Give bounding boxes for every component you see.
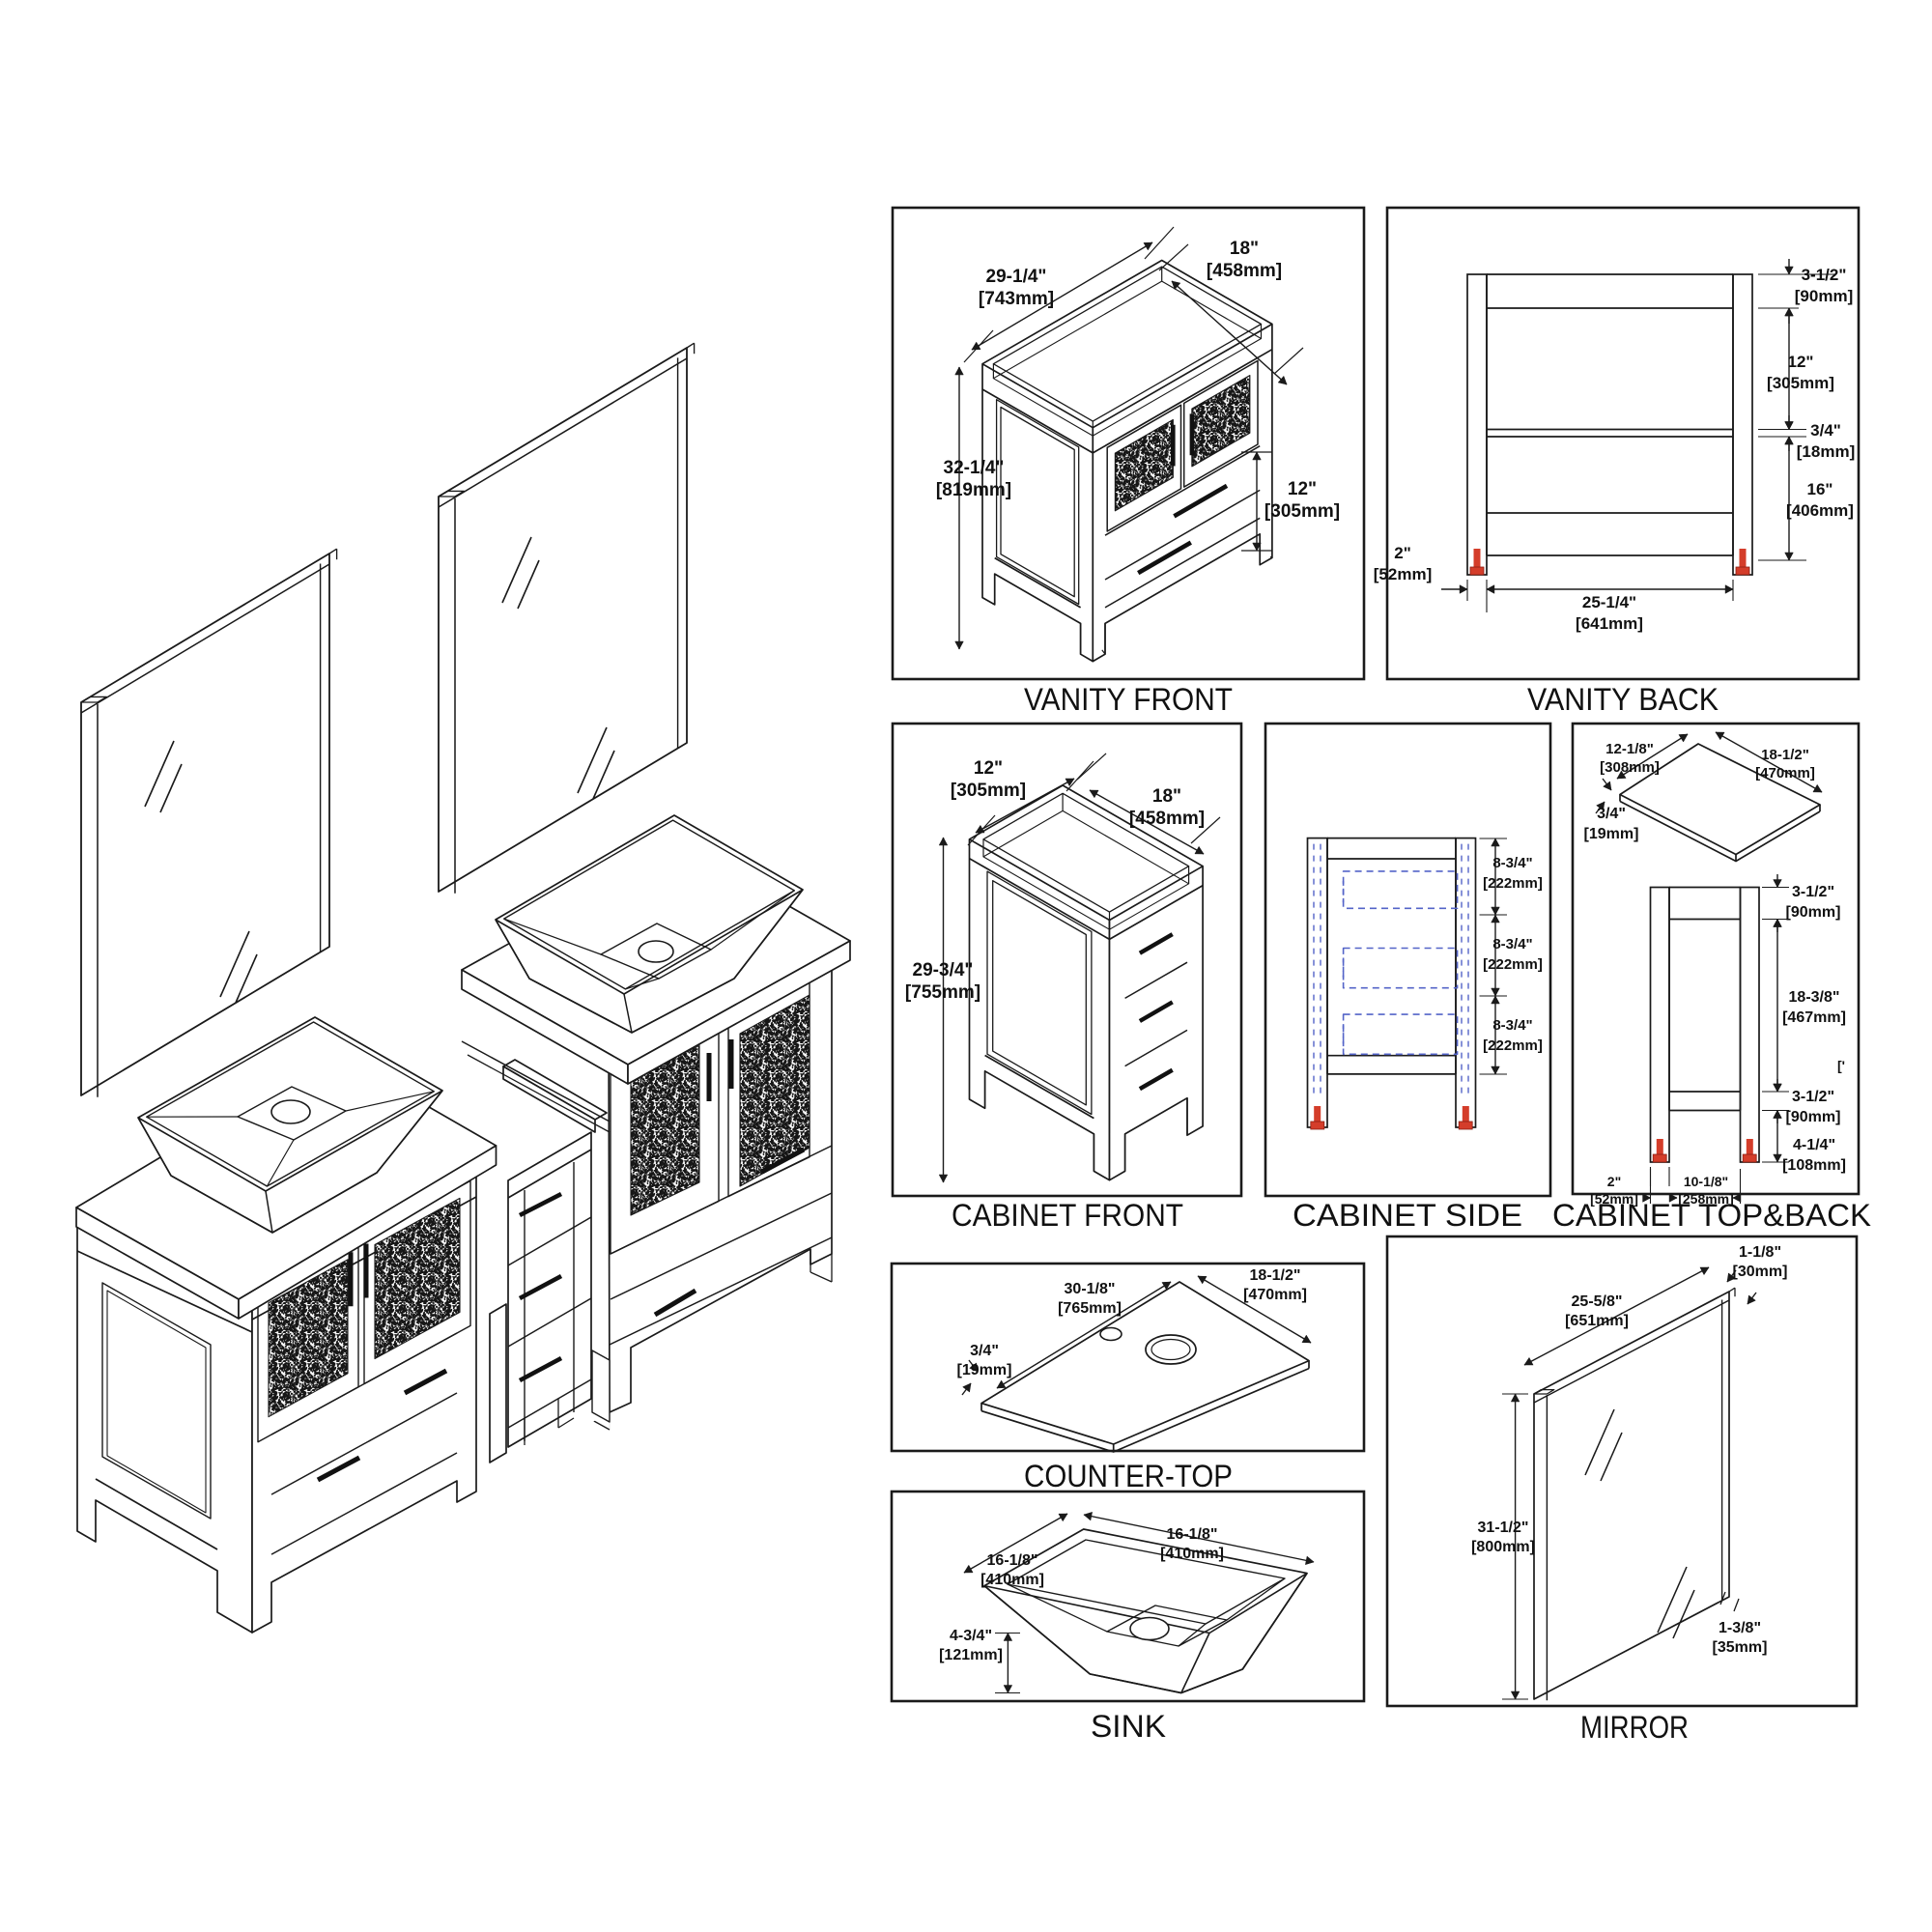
svg-text:8-3/4": 8-3/4"	[1492, 1017, 1532, 1034]
svg-text:[410mm]: [410mm]	[1160, 1546, 1224, 1562]
svg-text:[18mm]: [18mm]	[1797, 442, 1855, 461]
svg-text:[308mm]: [308mm]	[1600, 759, 1660, 776]
svg-text:[19mm]: [19mm]	[957, 1362, 1012, 1378]
svg-text:[90mm]: [90mm]	[1786, 904, 1841, 921]
svg-text:[458mm]: [458mm]	[1129, 809, 1205, 829]
svg-text:VANITY FRONT: VANITY FRONT	[1024, 682, 1233, 717]
svg-text:MIRROR: MIRROR	[1580, 1710, 1689, 1745]
svg-text:[52mm]: [52mm]	[1374, 565, 1432, 583]
svg-text:[121mm]: [121mm]	[939, 1647, 1003, 1663]
svg-text:25-5/8": 25-5/8"	[1572, 1293, 1623, 1310]
svg-text:[': ['	[1837, 1058, 1845, 1073]
svg-text:12": 12"	[974, 758, 1003, 779]
svg-text:10-1/8": 10-1/8"	[1684, 1174, 1728, 1189]
svg-text:18": 18"	[1152, 786, 1181, 807]
svg-text:29-1/4": 29-1/4"	[986, 267, 1047, 287]
svg-text:18-1/2": 18-1/2"	[1250, 1267, 1301, 1284]
svg-text:3/4": 3/4"	[1597, 806, 1626, 822]
svg-text:[258mm]: [258mm]	[1678, 1191, 1734, 1207]
svg-text:2": 2"	[1607, 1174, 1621, 1189]
svg-text:3/4": 3/4"	[1810, 421, 1841, 440]
svg-text:[410mm]: [410mm]	[980, 1572, 1044, 1588]
svg-text:[470mm]: [470mm]	[1243, 1287, 1307, 1303]
svg-text:CABINET FRONT: CABINET FRONT	[952, 1198, 1183, 1233]
svg-text:29-3/4": 29-3/4"	[913, 960, 974, 980]
svg-text:[52mm]: [52mm]	[1590, 1191, 1638, 1207]
svg-text:[305mm]: [305mm]	[1264, 501, 1340, 522]
svg-text:3-1/2": 3-1/2"	[1802, 266, 1847, 284]
svg-text:[755mm]: [755mm]	[905, 982, 980, 1003]
svg-text:[35mm]: [35mm]	[1713, 1639, 1768, 1656]
svg-text:[108mm]: [108mm]	[1782, 1157, 1846, 1174]
svg-text:[819mm]: [819mm]	[936, 480, 1011, 500]
svg-text:[222mm]: [222mm]	[1483, 875, 1543, 892]
svg-text:18-3/8": 18-3/8"	[1789, 989, 1840, 1006]
svg-text:32-1/4": 32-1/4"	[944, 458, 1005, 478]
svg-text:[458mm]: [458mm]	[1207, 261, 1282, 281]
svg-text:[406mm]: [406mm]	[1786, 501, 1854, 520]
svg-text:2": 2"	[1394, 544, 1411, 562]
svg-text:18-1/2": 18-1/2"	[1761, 747, 1809, 763]
svg-text:16-1/8": 16-1/8"	[1167, 1526, 1218, 1543]
svg-text:1-3/8": 1-3/8"	[1719, 1620, 1761, 1636]
svg-text:4-3/4": 4-3/4"	[950, 1628, 992, 1644]
svg-text:4-1/4": 4-1/4"	[1793, 1137, 1835, 1153]
svg-text:[651mm]: [651mm]	[1565, 1313, 1629, 1329]
svg-text:1-1/8": 1-1/8"	[1739, 1244, 1781, 1261]
svg-text:3-1/2": 3-1/2"	[1792, 884, 1834, 900]
svg-text:16": 16"	[1807, 480, 1833, 498]
svg-text:[305mm]: [305mm]	[1767, 374, 1834, 392]
svg-text:[800mm]: [800mm]	[1471, 1539, 1535, 1555]
svg-text:[743mm]: [743mm]	[979, 289, 1054, 309]
svg-text:16-1/8": 16-1/8"	[987, 1552, 1038, 1569]
svg-text:12-1/8": 12-1/8"	[1605, 741, 1654, 757]
svg-text:12": 12"	[1788, 353, 1814, 371]
svg-text:18": 18"	[1230, 239, 1259, 259]
svg-text:COUNTER-TOP: COUNTER-TOP	[1024, 1459, 1233, 1493]
svg-text:8-3/4": 8-3/4"	[1492, 936, 1532, 952]
svg-text:[765mm]: [765mm]	[1058, 1300, 1122, 1317]
svg-text:[30mm]: [30mm]	[1733, 1264, 1788, 1280]
svg-text:3-1/2": 3-1/2"	[1792, 1089, 1834, 1105]
svg-text:[470mm]: [470mm]	[1755, 765, 1815, 781]
svg-text:VANITY BACK: VANITY BACK	[1527, 682, 1719, 717]
svg-text:3/4": 3/4"	[970, 1343, 999, 1359]
svg-text:[222mm]: [222mm]	[1483, 956, 1543, 973]
svg-text:[90mm]: [90mm]	[1795, 287, 1853, 305]
svg-text:[90mm]: [90mm]	[1786, 1109, 1841, 1125]
svg-text:8-3/4": 8-3/4"	[1492, 855, 1532, 871]
svg-text:30-1/8": 30-1/8"	[1065, 1281, 1116, 1297]
svg-text:CABINET SIDE: CABINET SIDE	[1293, 1198, 1522, 1233]
svg-text:25-1/4": 25-1/4"	[1582, 593, 1636, 611]
svg-text:[641mm]: [641mm]	[1576, 614, 1643, 633]
svg-text:[467mm]: [467mm]	[1782, 1009, 1846, 1026]
svg-text:12": 12"	[1288, 479, 1317, 499]
svg-text:[19mm]: [19mm]	[1584, 826, 1639, 842]
svg-text:[305mm]: [305mm]	[951, 781, 1026, 801]
svg-text:SINK: SINK	[1091, 1709, 1166, 1744]
svg-text:31-1/2": 31-1/2"	[1478, 1520, 1529, 1536]
svg-text:[222mm]: [222mm]	[1483, 1037, 1543, 1054]
